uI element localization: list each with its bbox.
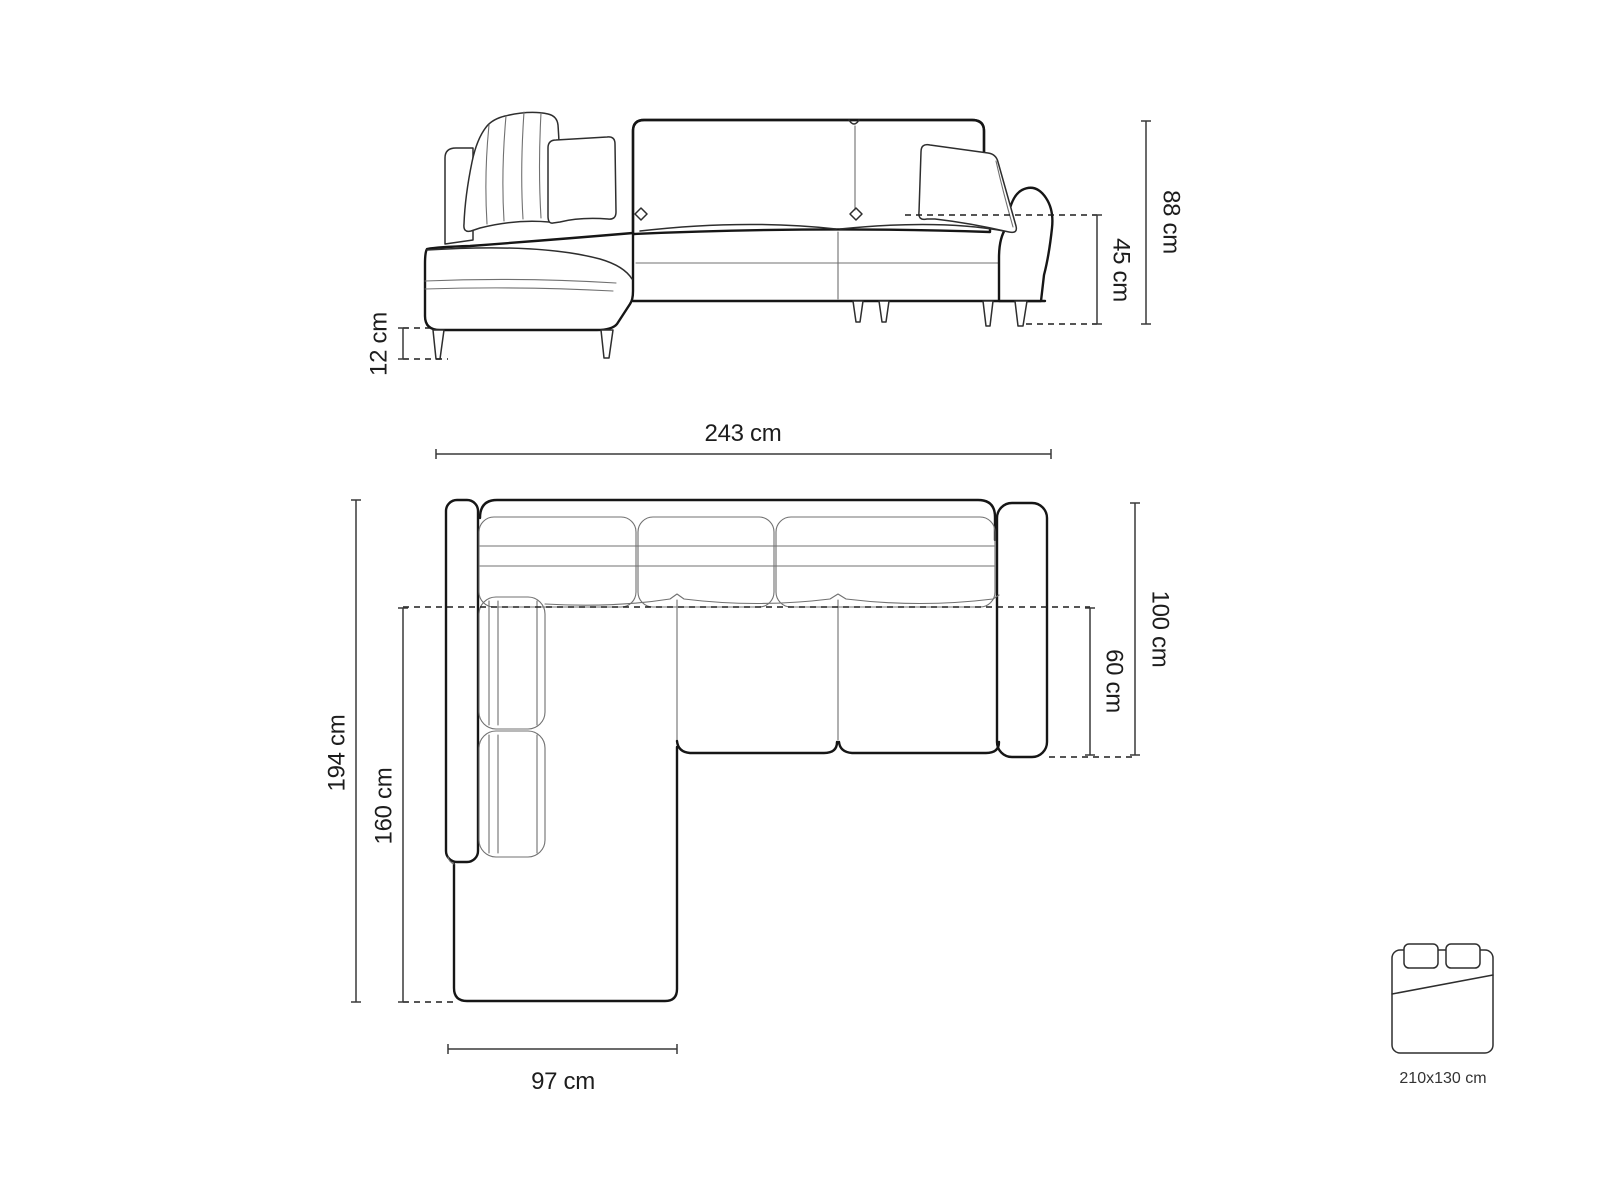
plan-chaise-cushion-seams [489,601,537,853]
dim-body-depth: 100 cm [1130,503,1174,755]
bed-icon-pillow [1446,944,1480,968]
dim-label-seat-depth: 60 cm [1101,649,1128,713]
dim-total-depth: 194 cm [323,500,361,1002]
plan-back-cushion [638,517,774,607]
bed-icon-pillow [1404,944,1438,968]
sleeping-area-icon: 210x130 cm [1392,944,1493,1087]
plan-backrest-edge [480,500,995,540]
sofa-leg [1015,301,1027,326]
dim-total-width: 243 cm [436,420,1051,459]
sofa-side-chaise-section [425,112,633,359]
plan-seat-dividers [677,600,838,740]
plan-seat-front-edge [677,741,999,753]
sofa-leg [983,301,993,326]
chaise-leg [433,330,444,359]
plan-back-cushion-seams [480,546,994,566]
bed-size-label: 210x130 cm [1399,1070,1486,1087]
bed-icon-blanket-fold [1392,975,1493,994]
dim-label-chaise-depth: 160 cm [370,768,397,845]
diagram-svg: 88 cm 45 cm 12 cm [0,0,1600,1200]
plan-left-armrest [446,500,478,862]
dim-seat-depth: 60 cm [1049,608,1135,757]
dim-label-seat-height: 45 cm [1108,238,1135,302]
dim-label-leg-height: 12 cm [365,312,392,376]
back-pillow-right [919,145,1016,233]
dim-label-total-width: 243 cm [705,420,782,447]
plan-back-cushion [479,517,636,607]
plan-chaise-outline [454,747,677,1001]
plan-back-cushion [776,517,995,607]
dim-total-height: 88 cm [1141,121,1185,324]
sofa-side-main-section [633,120,1052,326]
chaise-body [425,233,633,330]
dim-chaise-width: 97 cm [448,1044,677,1095]
sofa-leg [853,301,863,322]
side-elevation-view: 88 cm 45 cm 12 cm [365,112,1184,376]
back-pillow-left [548,137,616,223]
dim-label-total-height: 88 cm [1158,190,1185,254]
sofa-leg [879,301,889,322]
dim-label-body-depth: 100 cm [1147,591,1174,668]
plan-right-armrest [997,503,1047,757]
chaise-leg [601,330,613,358]
sofa-dimension-diagram: 88 cm 45 cm 12 cm [0,0,1600,1200]
headrest-cushion [464,112,560,231]
dim-label-total-depth: 194 cm [323,715,350,792]
dim-label-chaise-width: 97 cm [531,1068,595,1095]
top-plan-view: 243 cm 194 cm 160 cm 100 cm 60 cm 97 cm [323,420,1173,1095]
